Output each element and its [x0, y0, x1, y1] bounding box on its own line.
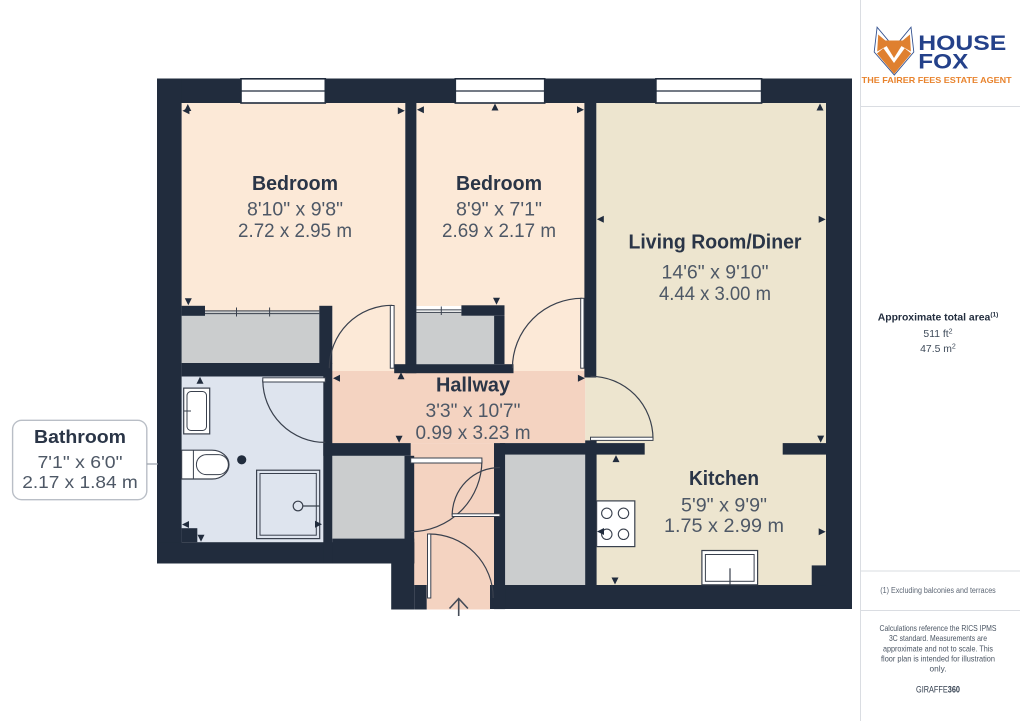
svg-text:Approximate total area(1): Approximate total area(1) [878, 311, 999, 323]
svg-text:0.99 x 3.23 m: 0.99 x 3.23 m [416, 423, 531, 444]
svg-text:4.44 x 3.00 m: 4.44 x 3.00 m [659, 284, 771, 305]
svg-text:14'6" x 9'10": 14'6" x 9'10" [662, 263, 769, 284]
svg-text:3C standard. Measurements are: 3C standard. Measurements are [889, 633, 987, 643]
svg-text:47.5 m2: 47.5 m2 [920, 344, 956, 356]
svg-text:Kitchen: Kitchen [689, 468, 759, 490]
svg-text:FOX: FOX [918, 50, 968, 73]
svg-text:7'1" x 6'0": 7'1" x 6'0" [38, 452, 123, 472]
svg-text:Bedroom: Bedroom [456, 173, 542, 195]
svg-text:Bathroom: Bathroom [34, 427, 126, 447]
svg-text:Living Room/Diner: Living Room/Diner [629, 232, 802, 254]
svg-text:8'9" x 7'1": 8'9" x 7'1" [456, 200, 542, 221]
svg-text:511 ft2: 511 ft2 [923, 329, 952, 341]
svg-text:Bedroom: Bedroom [252, 173, 338, 195]
svg-text:THE FAIRER FEES ESTATE AGENT: THE FAIRER FEES ESTATE AGENT [862, 75, 1013, 85]
svg-text:5'9" x 9'9": 5'9" x 9'9" [681, 496, 767, 517]
svg-text:Hallway: Hallway [436, 375, 511, 397]
svg-text:Calculations reference the RIC: Calculations reference the RICS IPMS [880, 623, 997, 633]
svg-text:3'3" x 10'7": 3'3" x 10'7" [426, 401, 521, 422]
svg-text:2.72 x 2.95 m: 2.72 x 2.95 m [238, 221, 352, 242]
svg-text:floor plan is intended for ill: floor plan is intended for illustration [881, 653, 995, 663]
svg-text:approximate and not to scale.: approximate and not to scale. This [883, 643, 993, 653]
svg-text:1.75 x 2.99 m: 1.75 x 2.99 m [664, 516, 784, 537]
svg-text:only.: only. [930, 664, 947, 674]
svg-text:8'10" x 9'8": 8'10" x 9'8" [247, 200, 343, 221]
svg-text:GIRAFFE360: GIRAFFE360 [916, 685, 960, 696]
svg-text:2.69 x 2.17 m: 2.69 x 2.17 m [442, 221, 556, 242]
svg-text:2.17 x 1.84 m: 2.17 x 1.84 m [22, 472, 138, 492]
svg-text:(1) Excluding balconies and te: (1) Excluding balconies and terraces [880, 586, 996, 595]
